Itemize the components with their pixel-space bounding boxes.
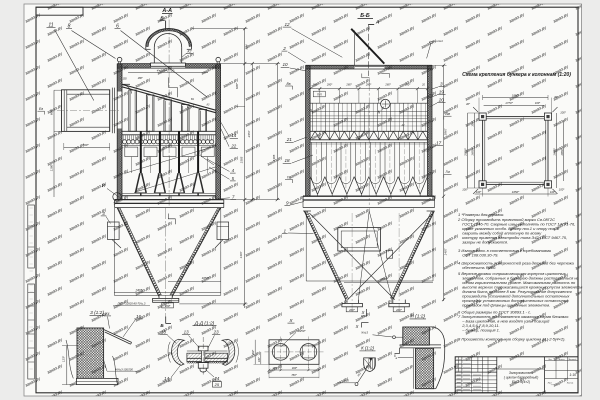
- svg-text:9: 9: [286, 201, 289, 206]
- svg-text:3: 3: [440, 82, 443, 87]
- svg-text:600*: 600*: [235, 82, 239, 89]
- svg-text:П-Л: П-Л: [317, 93, 322, 97]
- svg-text:Лист: Лист: [548, 382, 552, 384]
- svg-text:Ж-Ь3: Ж-Ь3: [360, 331, 368, 335]
- svg-text:4×680=2720: 4×680=2720: [157, 69, 175, 73]
- svg-text:180*: 180*: [258, 357, 261, 362]
- svg-text:280*: 280*: [404, 83, 411, 87]
- svg-text:1890*: 1890*: [380, 277, 389, 281]
- svg-text:Гм: Гм: [446, 170, 451, 174]
- svg-text:1407: 1407: [239, 251, 243, 258]
- svg-text:К: К: [378, 110, 381, 115]
- svg-text:Гв: Гв: [287, 176, 291, 180]
- svg-text:100*: 100*: [559, 188, 565, 192]
- svg-text:зазоры не допускаются.: зазоры не допускаются.: [461, 239, 508, 244]
- svg-text:1850*: 1850*: [560, 147, 564, 155]
- svg-text:23: 23: [213, 329, 219, 334]
- svg-text:К (1:2): К (1:2): [361, 346, 374, 351]
- svg-text:200*: 200*: [395, 308, 402, 312]
- svg-text:123*: 123*: [62, 355, 66, 362]
- svg-text:280*: 280*: [345, 83, 352, 87]
- svg-text:25: 25: [214, 382, 220, 387]
- svg-text:2457: 2457: [247, 130, 251, 138]
- svg-text:760*: 760*: [82, 143, 89, 147]
- svg-text:2867: 2867: [444, 128, 448, 136]
- svg-text:ОСТ 108.030.30-79.: ОСТ 108.030.30-79.: [462, 253, 498, 258]
- svg-text:280*: 280*: [326, 83, 333, 87]
- svg-text:1650*: 1650*: [471, 147, 475, 155]
- svg-text:обеспечить Rz80.: обеспечить Rz80.: [462, 265, 496, 270]
- svg-text:1770*: 1770*: [505, 101, 513, 105]
- svg-text:Листов: Листов: [567, 382, 574, 384]
- svg-text:10: 10: [282, 62, 288, 67]
- svg-text:12: 12: [284, 22, 290, 27]
- svg-text:21: 21: [286, 137, 293, 142]
- svg-text:Золоуловитель: Золоуловитель: [509, 371, 534, 375]
- svg-text:1407: 1407: [444, 248, 448, 255]
- svg-text:( циклон батарейный): ( циклон батарейный): [504, 376, 539, 380]
- svg-text:1650*: 1650*: [512, 190, 520, 194]
- svg-text:Вв: Вв: [286, 82, 290, 86]
- svg-text:Н8-Ь3-100/200: Н8-Ь3-100/200: [115, 367, 133, 371]
- svg-text:2405: 2405: [134, 288, 142, 292]
- svg-text:1:10: 1:10: [569, 373, 576, 377]
- svg-text:150: 150: [313, 83, 318, 87]
- svg-text:14: 14: [231, 133, 236, 138]
- svg-text:Ø250*: Ø250*: [297, 329, 307, 333]
- svg-text:13: 13: [184, 330, 189, 335]
- svg-text:200*: 200*: [164, 304, 171, 308]
- svg-text:Масса: Масса: [559, 359, 566, 361]
- svg-text:ГОСТ 12820-80-70-Ь,3: ГОСТ 12820-80-70-Ь,3: [118, 302, 146, 306]
- svg-text:К4: К4: [106, 312, 110, 316]
- svg-text:17: 17: [436, 141, 442, 146]
- svg-text:А: А: [375, 20, 380, 26]
- svg-text:БЦ-2-5(4×2): БЦ-2-5(4×2): [512, 380, 530, 384]
- svg-text:16: 16: [136, 314, 142, 319]
- svg-text:1650*: 1650*: [202, 276, 211, 280]
- svg-text:5: 5: [394, 354, 396, 358]
- svg-text:600*: 600*: [50, 108, 54, 115]
- svg-text:Н-Ь4: Н-Ь4: [437, 39, 444, 43]
- svg-text:1585: 1585: [240, 156, 244, 163]
- svg-text:Лит: Лит: [548, 359, 551, 361]
- svg-text:А2: А2: [401, 124, 406, 127]
- svg-text:И: И: [102, 183, 106, 189]
- svg-text:280*: 280*: [365, 83, 372, 87]
- svg-text:20: 20: [438, 98, 445, 103]
- svg-text:Ев: Ев: [39, 107, 43, 111]
- svg-text:Вм: Вм: [445, 112, 450, 116]
- svg-text:Масштаб: Масштаб: [569, 359, 577, 361]
- svg-text:100*: 100*: [462, 188, 468, 192]
- svg-text:прокладок под фланцы циклонных: прокладок под фланцы циклонных элементов…: [462, 303, 550, 308]
- svg-text:– бункер, позиция 1.: – бункер, позиция 1.: [461, 327, 500, 332]
- svg-text:Схема крепления бункера к коло: Схема крепления бункера к колоннам (1:20…: [462, 71, 571, 78]
- svg-text:Х: Х: [361, 310, 365, 315]
- svg-text:534: 534: [244, 44, 248, 49]
- svg-text:1385: 1385: [272, 154, 276, 161]
- svg-text:18: 18: [161, 330, 166, 335]
- svg-text:100*: 100*: [560, 110, 566, 114]
- svg-text:280*: 280*: [384, 83, 391, 87]
- svg-text:14: 14: [164, 376, 169, 381]
- svg-text:2: 2: [282, 46, 286, 51]
- svg-text:К2: К2: [188, 50, 192, 54]
- svg-text:В-Ь3: В-Ь3: [343, 379, 349, 383]
- svg-text:Х: Х: [355, 324, 359, 329]
- svg-text:24: 24: [213, 376, 219, 381]
- svg-text:2080*: 2080*: [463, 147, 467, 156]
- svg-text:1850*: 1850*: [512, 93, 520, 97]
- svg-text:22: 22: [230, 144, 236, 149]
- svg-text:1: 1: [284, 229, 287, 234]
- svg-text:8 Произвести контрольную сборк: 8 Произвести контрольную сборку циклона …: [458, 336, 566, 341]
- svg-text:18: 18: [284, 158, 290, 163]
- svg-text:1650*: 1650*: [553, 147, 557, 155]
- svg-text:200*: 200*: [348, 308, 355, 312]
- svg-text:1180: 1180: [50, 164, 54, 171]
